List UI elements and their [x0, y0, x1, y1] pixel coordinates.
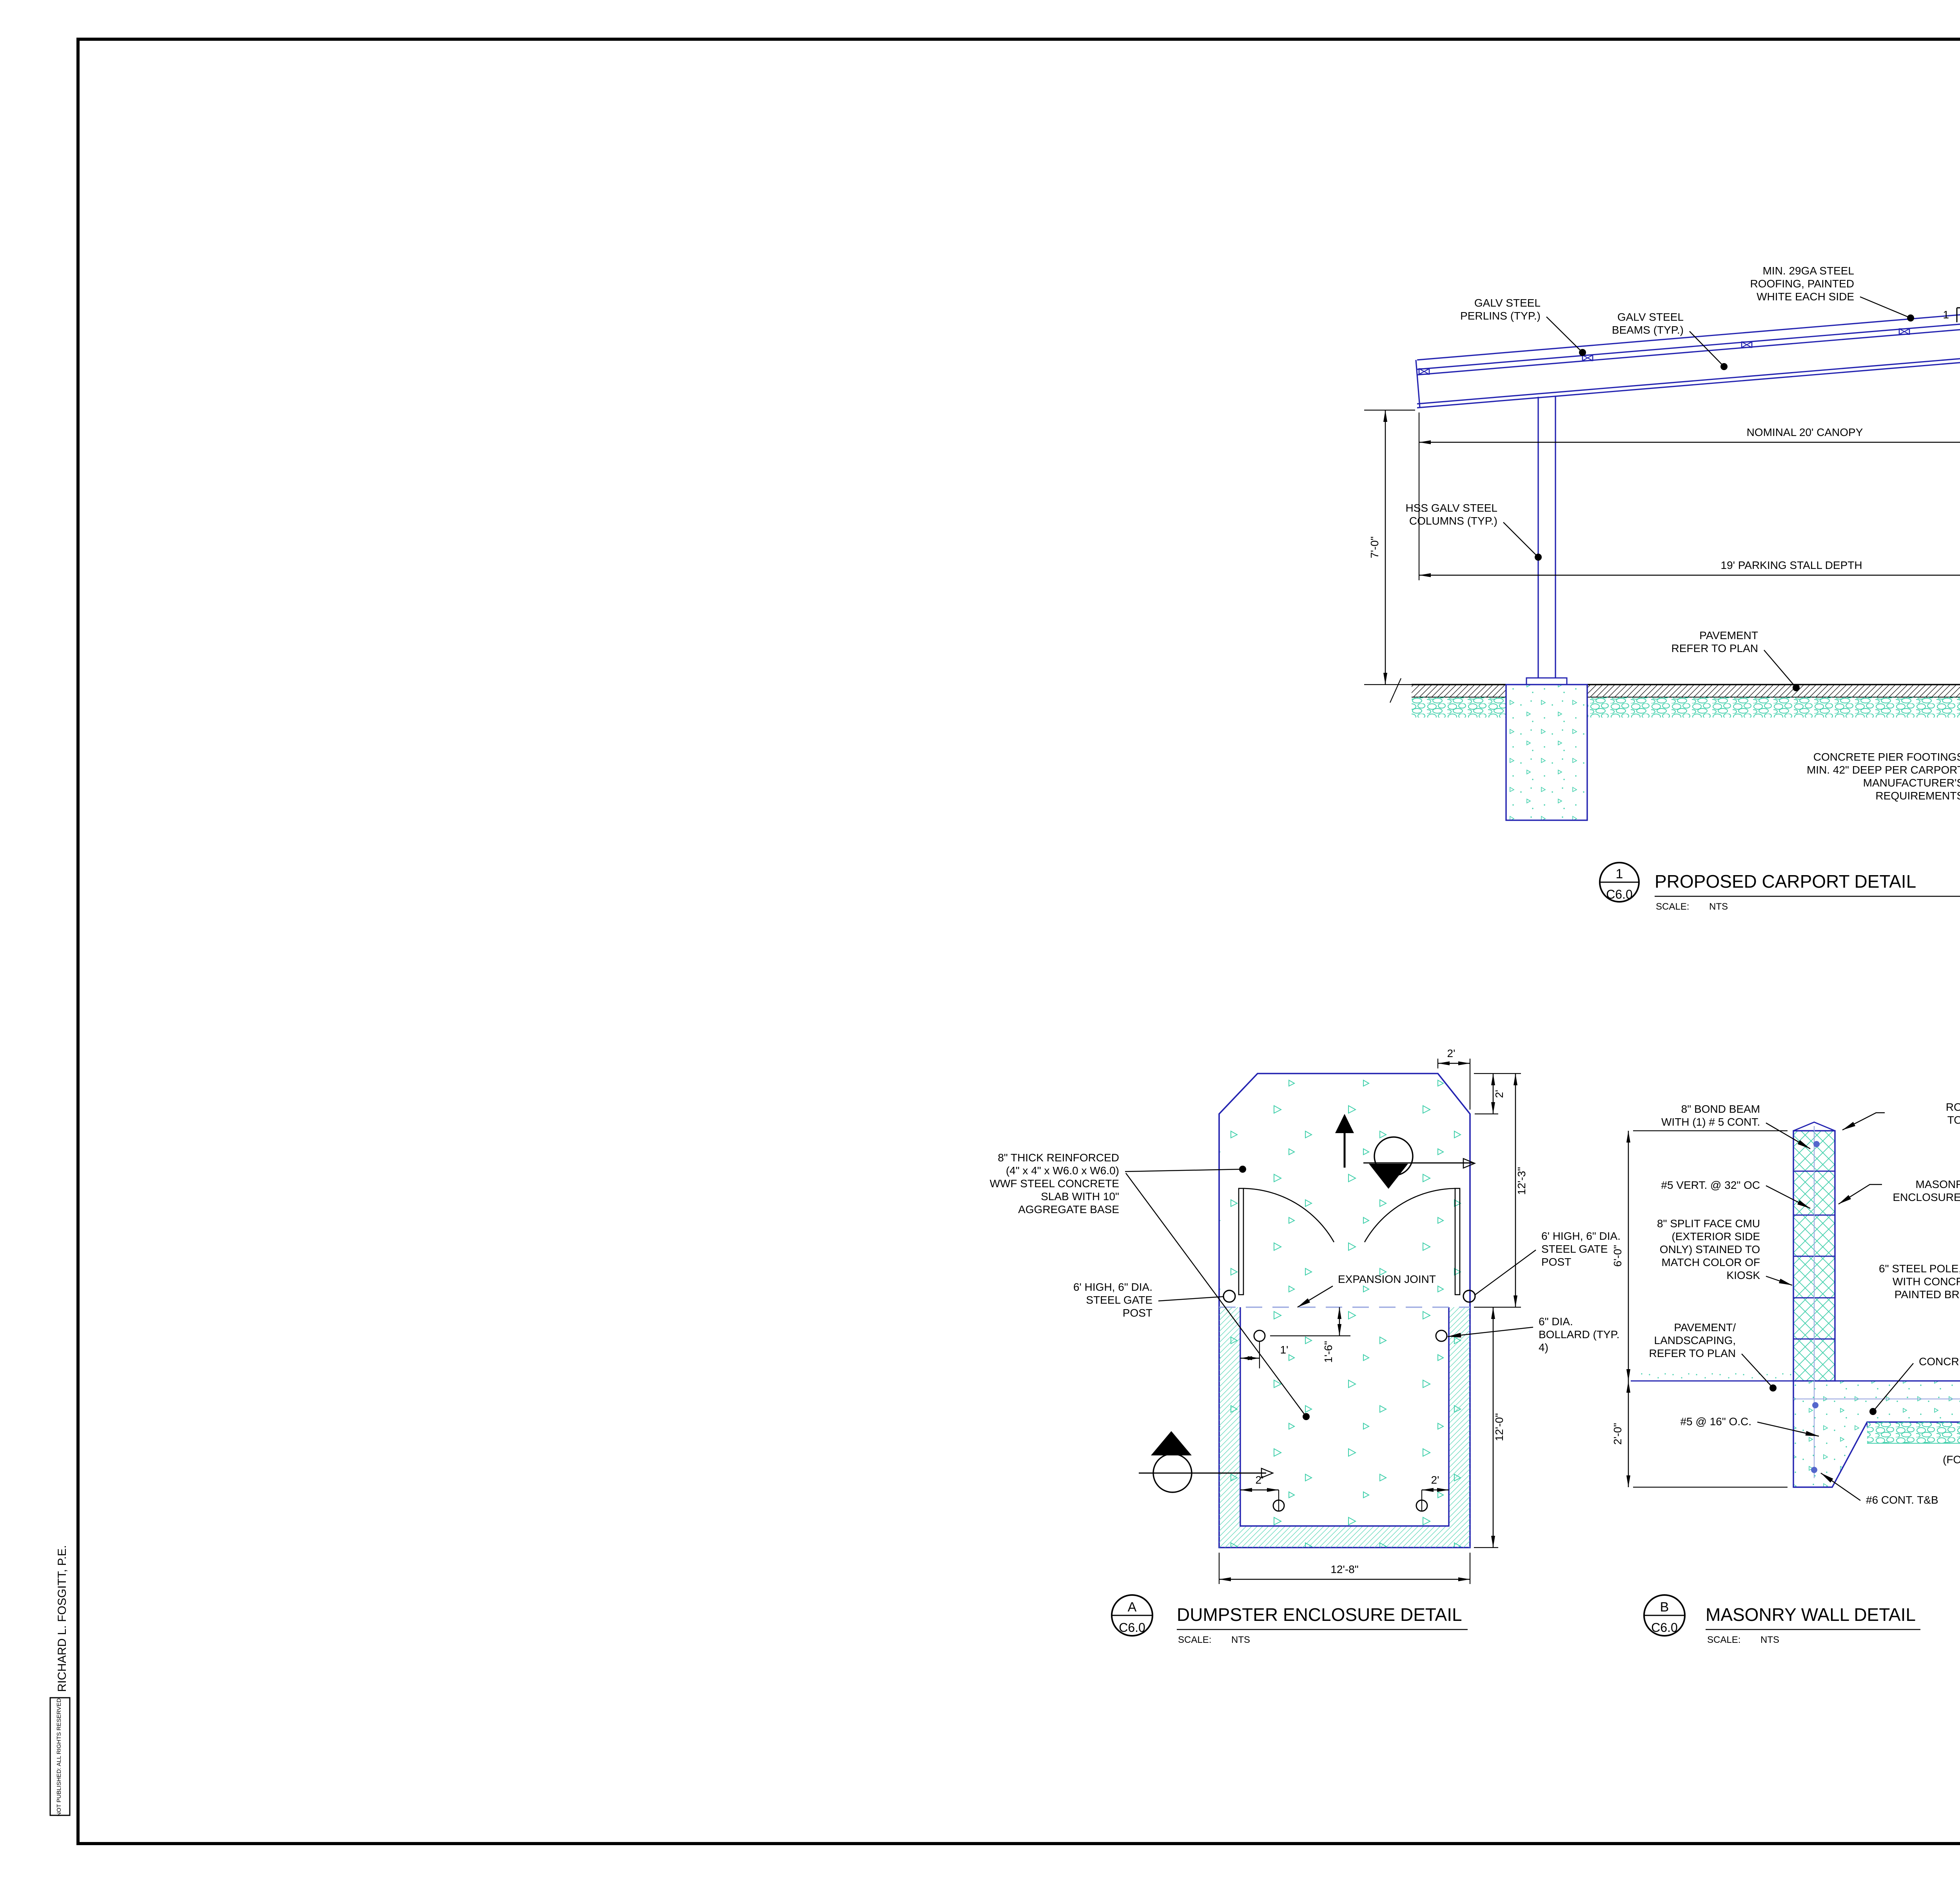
svg-text:CONCRETE: CONCRETE — [1919, 1355, 1960, 1368]
svg-text:WHITE EACH SIDE: WHITE EACH SIDE — [1757, 291, 1854, 303]
svg-text:RICHARD L. FOSGITT, P.E.: RICHARD L. FOSGITT, P.E. — [56, 1545, 69, 1692]
svg-text:LANDSCAPING,: LANDSCAPING, — [1654, 1334, 1736, 1346]
svg-text:(EXTERIOR SIDE: (EXTERIOR SIDE — [1671, 1230, 1760, 1243]
svg-text:MASONRY: MASONRY — [1915, 1178, 1960, 1190]
svg-text:PROPOSED CARPORT DETAIL: PROPOSED CARPORT DETAIL — [1655, 871, 1916, 892]
svg-text:8" BOND BEAM: 8" BOND BEAM — [1681, 1103, 1760, 1115]
svg-text:WITH CONCRETE,: WITH CONCRETE, — [1893, 1275, 1960, 1288]
svg-text:PAVEMENT: PAVEMENT — [1699, 629, 1758, 641]
svg-text:12'-8": 12'-8" — [1330, 1563, 1358, 1575]
svg-text:WWF STEEL CONCRETE: WWF STEEL CONCRETE — [990, 1177, 1119, 1190]
svg-text:STEEL GATE: STEEL GATE — [1086, 1294, 1152, 1306]
svg-text:2': 2' — [1431, 1474, 1439, 1486]
svg-text:C6.0: C6.0 — [1606, 887, 1633, 901]
svg-text:MASONRY WALL DETAIL: MASONRY WALL DETAIL — [1706, 1604, 1916, 1625]
svg-text:REFER TO PLAN: REFER TO PLAN — [1671, 642, 1758, 654]
svg-text:GALV STEEL: GALV STEEL — [1474, 297, 1541, 309]
svg-text:6'-0": 6'-0" — [1612, 1245, 1624, 1267]
svg-text:PAINTED BROWN: PAINTED BROWN — [1895, 1288, 1960, 1301]
svg-text:7'-0": 7'-0" — [1368, 536, 1381, 558]
svg-text:ONLY) STAINED TO: ONLY) STAINED TO — [1660, 1243, 1760, 1255]
svg-text:PAVEMENT/: PAVEMENT/ — [1674, 1321, 1736, 1333]
svg-text:6" STEEL POLE, FILLED: 6" STEEL POLE, FILLED — [1879, 1263, 1960, 1275]
svg-text:2': 2' — [1493, 1090, 1505, 1098]
svg-text:1: 1 — [1943, 309, 1949, 321]
svg-text:BEAMS (TYP.): BEAMS (TYP.) — [1612, 324, 1684, 336]
svg-text:(4" x 4" x W6.0 x W6.0): (4" x 4" x W6.0 x W6.0) — [1006, 1164, 1119, 1177]
svg-text:ENCLOSURE WALL: ENCLOSURE WALL — [1893, 1191, 1960, 1203]
svg-text:2': 2' — [1447, 1047, 1455, 1059]
svg-text:6' HIGH, 6" DIA.: 6' HIGH, 6" DIA. — [1541, 1230, 1621, 1242]
svg-text:2': 2' — [1256, 1474, 1264, 1486]
svg-text:ROOFING, PAINTED: ROOFING, PAINTED — [1750, 278, 1855, 290]
svg-text:STEEL GATE: STEEL GATE — [1541, 1243, 1608, 1255]
svg-text:1: 1 — [1616, 867, 1623, 881]
svg-text:ROUNDED CONCRETE: ROUNDED CONCRETE — [1946, 1101, 1960, 1113]
svg-text:#6 CONT. T&B: #6 CONT. T&B — [1866, 1494, 1938, 1506]
svg-text:GALV STEEL: GALV STEEL — [1617, 311, 1684, 323]
svg-text:SCALE:: SCALE: — [1707, 1635, 1740, 1645]
svg-text:12'-0": 12'-0" — [1493, 1413, 1505, 1441]
svg-text:C6.0: C6.0 — [1651, 1620, 1678, 1635]
svg-text:(FOOTING BEYOND): (FOOTING BEYOND) — [1943, 1453, 1960, 1466]
svg-text:2'-0": 2'-0" — [1612, 1423, 1624, 1445]
svg-text:SCALE:: SCALE: — [1178, 1635, 1211, 1645]
svg-text:6" DIA.: 6" DIA. — [1539, 1315, 1573, 1328]
svg-text:#5 @ 16" O.C.: #5 @ 16" O.C. — [1680, 1415, 1751, 1428]
svg-text:#5 VERT. @ 32" OC: #5 VERT. @ 32" OC — [1661, 1179, 1760, 1191]
svg-text:REFER TO PLAN: REFER TO PLAN — [1649, 1347, 1736, 1359]
svg-text:8" THICK REINFORCED: 8" THICK REINFORCED — [998, 1152, 1119, 1164]
svg-text:EXPANSION JOINT: EXPANSION JOINT — [1338, 1273, 1436, 1285]
svg-text:MIN. 29GA STEEL: MIN. 29GA STEEL — [1763, 265, 1854, 277]
svg-text:KIOSK: KIOSK — [1726, 1269, 1760, 1281]
svg-text:1'-6": 1'-6" — [1322, 1341, 1334, 1363]
svg-text:SCALE:: SCALE: — [1656, 901, 1689, 912]
svg-text:19' PARKING STALL DEPTH: 19' PARKING STALL DEPTH — [1720, 559, 1862, 571]
svg-text:TOP PAINTED BROWN: TOP PAINTED BROWN — [1947, 1114, 1960, 1126]
svg-text:HSS GALV STEEL: HSS GALV STEEL — [1406, 502, 1497, 514]
svg-text:WITH (1) # 5 CONT.: WITH (1) # 5 CONT. — [1661, 1116, 1760, 1128]
svg-text:SLAB WITH 10": SLAB WITH 10" — [1041, 1190, 1119, 1203]
svg-text:8" SPLIT FACE CMU: 8" SPLIT FACE CMU — [1657, 1217, 1760, 1230]
svg-text:PERLINS (TYP.): PERLINS (TYP.) — [1460, 310, 1541, 322]
svg-text:COLUMNS (TYP.): COLUMNS (TYP.) — [1409, 515, 1497, 527]
svg-text:B: B — [1660, 1600, 1669, 1615]
svg-text:4): 4) — [1539, 1341, 1548, 1353]
svg-text:REQUIREMENTS: REQUIREMENTS — [1875, 790, 1960, 802]
svg-text:MATCH COLOR OF: MATCH COLOR OF — [1662, 1256, 1760, 1268]
svg-text:12'-3": 12'-3" — [1515, 1167, 1528, 1195]
svg-text:6' HIGH, 6" DIA.: 6' HIGH, 6" DIA. — [1073, 1281, 1152, 1293]
svg-text:C6.0: C6.0 — [1119, 1620, 1145, 1635]
svg-text:NTS: NTS — [1760, 1635, 1779, 1645]
svg-text:POST: POST — [1541, 1256, 1571, 1268]
svg-text:NTS: NTS — [1231, 1635, 1250, 1645]
svg-text:CONCRETE PIER FOOTINGS: CONCRETE PIER FOOTINGS — [1813, 751, 1960, 763]
svg-text:POST: POST — [1123, 1307, 1152, 1319]
svg-text:NOT PUBLISHED: ALL RIGHTS: NOT PUBLISHED: ALL RIGHTS RESERVED. — [56, 1697, 62, 1817]
svg-text:NOMINAL 20' CANOPY: NOMINAL 20' CANOPY — [1747, 426, 1863, 438]
svg-text:MANUFACTURER'S: MANUFACTURER'S — [1863, 777, 1960, 789]
svg-text:DUMPSTER ENCLOSURE DETAIL: DUMPSTER ENCLOSURE DETAIL — [1177, 1604, 1462, 1625]
svg-text:A: A — [1128, 1600, 1137, 1615]
svg-text:1': 1' — [1280, 1344, 1289, 1356]
svg-text:NTS: NTS — [1709, 901, 1728, 912]
svg-text:AGGREGATE BASE: AGGREGATE BASE — [1018, 1203, 1119, 1215]
svg-text:BOLLARD (TYP.: BOLLARD (TYP. — [1539, 1328, 1619, 1341]
svg-text:MIN. 42" DEEP PER CARPORT: MIN. 42" DEEP PER CARPORT — [1807, 764, 1960, 776]
